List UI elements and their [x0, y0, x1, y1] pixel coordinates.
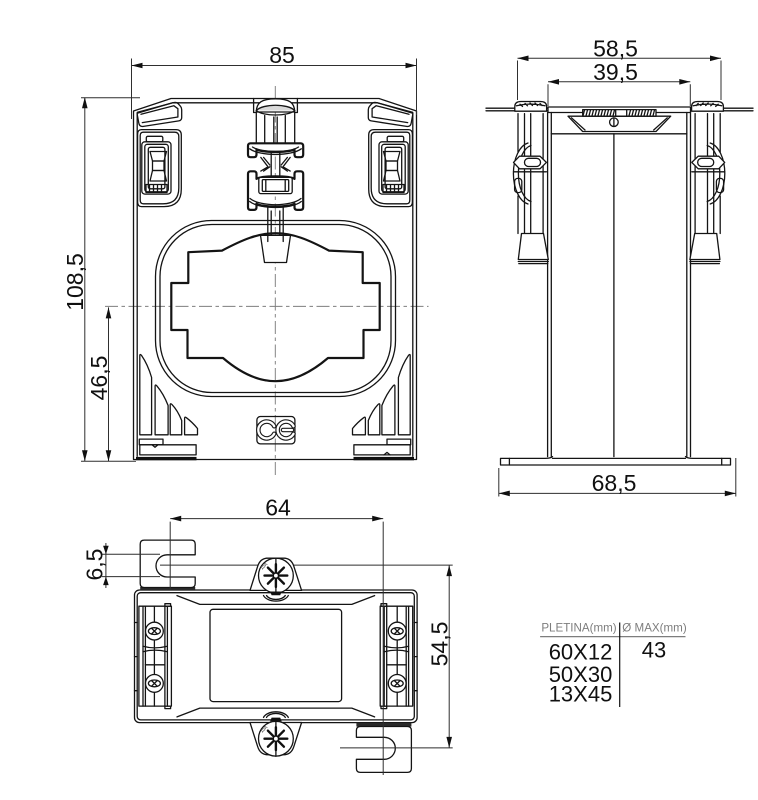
svg-text:Ø MAX(mm): Ø MAX(mm) [622, 622, 687, 635]
svg-text:85: 85 [269, 42, 295, 68]
svg-text:68,5: 68,5 [592, 470, 637, 496]
svg-text:54,5: 54,5 [426, 622, 452, 667]
svg-text:13X45: 13X45 [549, 682, 613, 707]
svg-text:108,5: 108,5 [62, 253, 88, 311]
svg-text:46,5: 46,5 [86, 356, 112, 401]
svg-text:60X12: 60X12 [549, 640, 613, 665]
svg-text:PLETINA(mm): PLETINA(mm) [541, 622, 616, 635]
svg-text:6,5: 6,5 [81, 549, 107, 581]
svg-text:64: 64 [265, 494, 291, 520]
svg-text:43: 43 [642, 638, 666, 663]
svg-text:39,5: 39,5 [593, 59, 638, 85]
svg-text:58,5: 58,5 [593, 36, 638, 62]
